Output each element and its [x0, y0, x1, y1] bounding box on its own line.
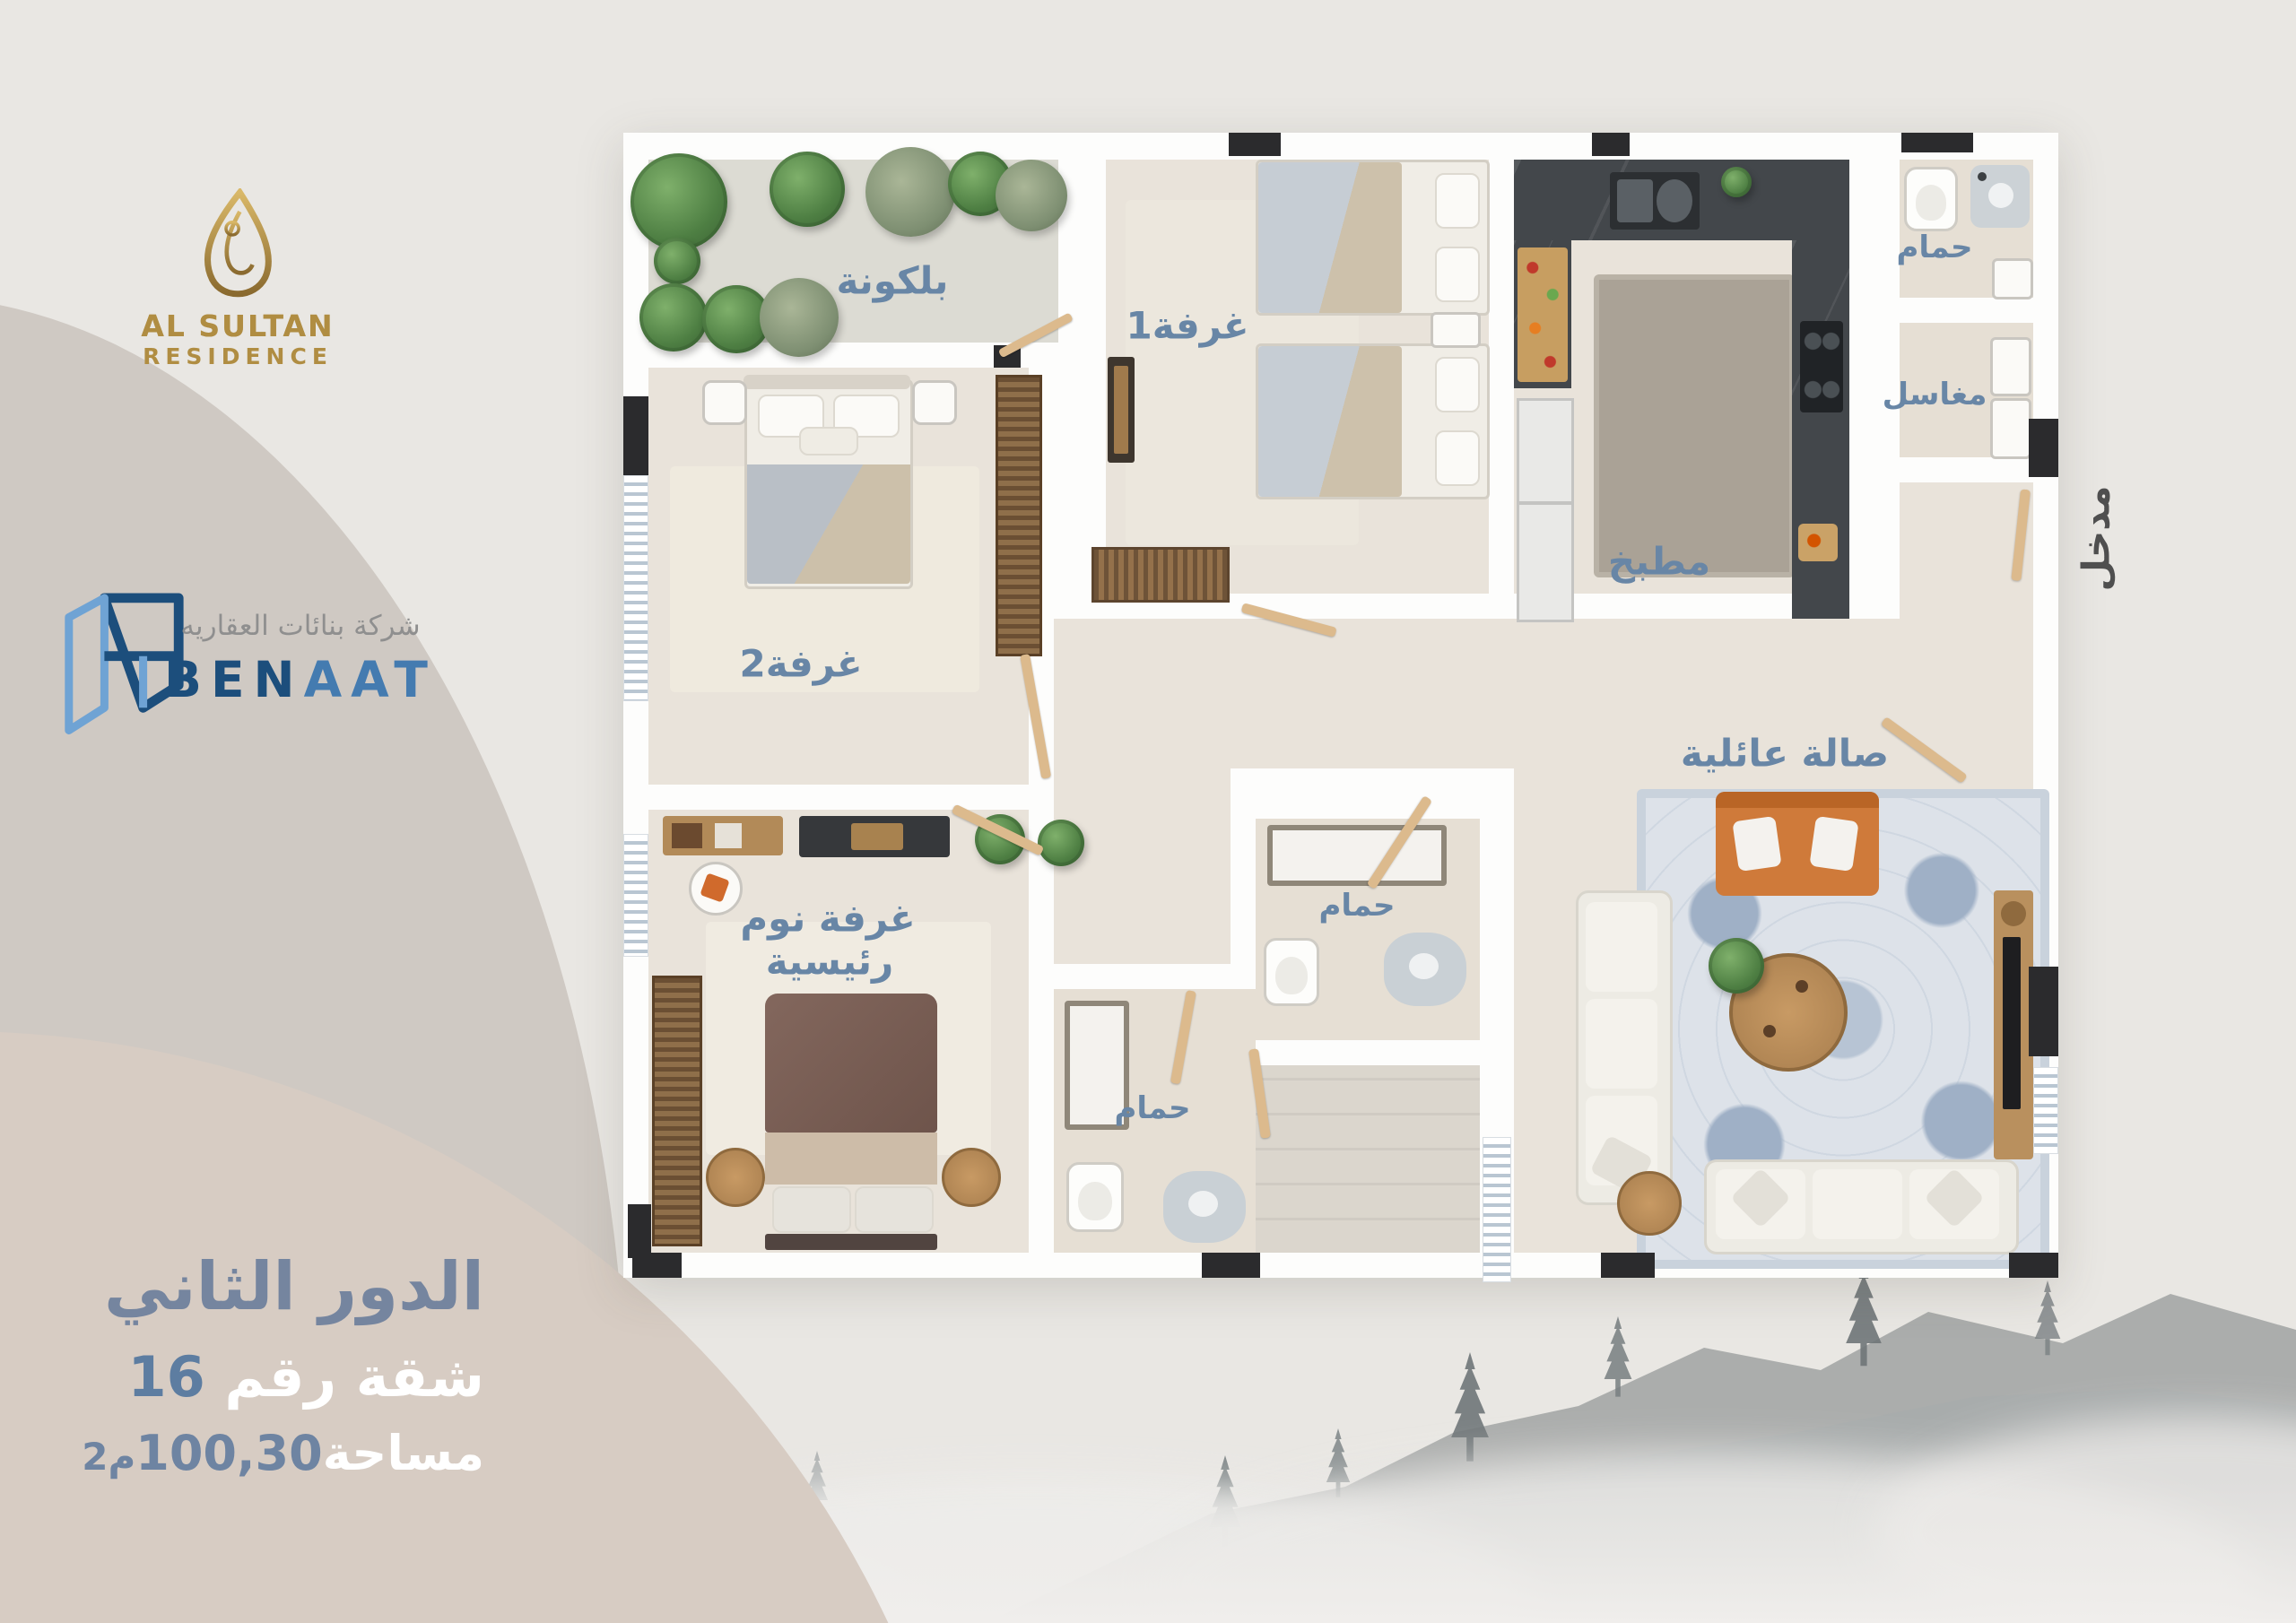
- sinks-label: مغاسل: [1883, 377, 1987, 412]
- hall-label: صالة عائلية: [1681, 732, 1889, 776]
- plant-icon: [865, 147, 955, 237]
- al-sultan-calligraphy-icon: [184, 188, 291, 305]
- shower: [1970, 165, 2030, 228]
- wall-accent: [632, 1253, 682, 1278]
- wall-accent: [628, 1204, 651, 1258]
- wall-accent: [1601, 1253, 1655, 1278]
- washbasin: [1990, 398, 2031, 459]
- bath-low-label: حمام: [1115, 1090, 1191, 1126]
- wardrobe: [996, 375, 1042, 656]
- washbasin: [1384, 933, 1466, 1006]
- al-sultan-title: AL SULTAN: [135, 308, 341, 343]
- window: [2033, 1067, 2058, 1154]
- single-bed: [1256, 160, 1490, 316]
- round-side-table: [706, 1148, 765, 1207]
- plant-icon: [1038, 820, 1084, 866]
- shelf: [663, 816, 783, 855]
- room-storage-floor: [1256, 1065, 1480, 1253]
- double-bed: [744, 379, 913, 589]
- round-side-table: [942, 1148, 1001, 1207]
- apartment-info: الدور الثاني شقة رقم 16 مساحة100,30م2: [72, 1239, 484, 1489]
- fridge: [1517, 502, 1574, 622]
- nightstand: [912, 380, 957, 425]
- master-bed: [765, 994, 937, 1250]
- cabinet: [1108, 357, 1135, 463]
- area-line: مساحة100,30م2: [72, 1419, 484, 1488]
- nightstand: [1431, 312, 1481, 348]
- chair: [689, 862, 743, 916]
- plant-icon: [1709, 938, 1764, 994]
- kitchen-sink: [1610, 172, 1700, 230]
- corridor-floor-a: [1054, 619, 1514, 768]
- plant-icon: [1721, 167, 1752, 197]
- toilet: [1904, 167, 1958, 231]
- room2-label: غرفة2: [739, 642, 862, 686]
- balcony-label: بلكونة: [837, 259, 949, 303]
- sofa-white-left: [1576, 890, 1673, 1205]
- cutting-board: [1518, 247, 1568, 382]
- entrance-label: مدخل: [2056, 484, 2136, 592]
- tv-stand: [799, 816, 950, 857]
- plant-icon: [770, 152, 845, 227]
- plant-icon: [639, 283, 708, 352]
- plant-icon: [996, 160, 1067, 231]
- wall-accent: [623, 396, 648, 475]
- room1-label: غرفة1: [1126, 304, 1248, 348]
- fridge: [1517, 398, 1574, 504]
- wall-accent: [2029, 419, 2058, 477]
- window: [1483, 1137, 1511, 1282]
- wardrobe: [652, 976, 702, 1246]
- master-label-line2: رئيسية: [766, 940, 893, 984]
- kitchen-rug: [1594, 274, 1795, 577]
- window: [623, 475, 648, 701]
- window: [623, 834, 648, 957]
- wall-accent: [1202, 1253, 1260, 1278]
- toilet: [1264, 938, 1319, 1006]
- bath-mid-label: حمام: [1319, 888, 1396, 924]
- wall-accent: [2009, 1253, 2058, 1278]
- brand-wordmark: BENAAT: [152, 651, 448, 708]
- plant-icon: [631, 153, 727, 250]
- bath-top-label: حمام: [1897, 230, 1973, 265]
- kitchen-label: مطبخ: [1608, 540, 1710, 584]
- bench: [1091, 547, 1230, 603]
- plant-icon: [760, 278, 839, 357]
- wall-accent: [2029, 967, 2058, 1056]
- al-sultan-logo: AL SULTAN RESIDENCE: [135, 188, 341, 369]
- kitchen-counter: [1792, 240, 1849, 619]
- plant-icon: [654, 238, 700, 284]
- bathtub: [1267, 825, 1447, 886]
- washbasin: [1990, 337, 2031, 396]
- tv-console: [1994, 890, 2033, 1159]
- single-bed: [1256, 343, 1490, 499]
- round-side-table: [1617, 1171, 1682, 1236]
- nightstand: [702, 380, 747, 425]
- apartment-number-line: شقة رقم 16: [72, 1335, 484, 1419]
- wall-accent: [1592, 133, 1630, 156]
- company-name-arabic: شركة بنائات العقاريه: [152, 610, 448, 642]
- wall-accent: [1901, 133, 1973, 152]
- wall-accent: [1229, 133, 1281, 156]
- stove: [1800, 321, 1843, 412]
- master-label-line1: غرفة نوم: [740, 897, 915, 941]
- washbasin: [1992, 258, 2033, 299]
- corridor-floor-b: [1054, 768, 1231, 964]
- sofa-white-bottom: [1704, 1159, 2019, 1254]
- al-sultan-subtitle: RESIDENCE: [135, 343, 341, 369]
- toilet: [1066, 1162, 1124, 1232]
- food-tray: [1798, 524, 1838, 561]
- floor-plan: بلكونة غرفة1 مطبخ حمام مغاسل: [623, 133, 2058, 1278]
- sofa-orange: [1716, 792, 1879, 896]
- floor-title: الدور الثاني: [72, 1239, 484, 1335]
- washbasin: [1163, 1171, 1246, 1243]
